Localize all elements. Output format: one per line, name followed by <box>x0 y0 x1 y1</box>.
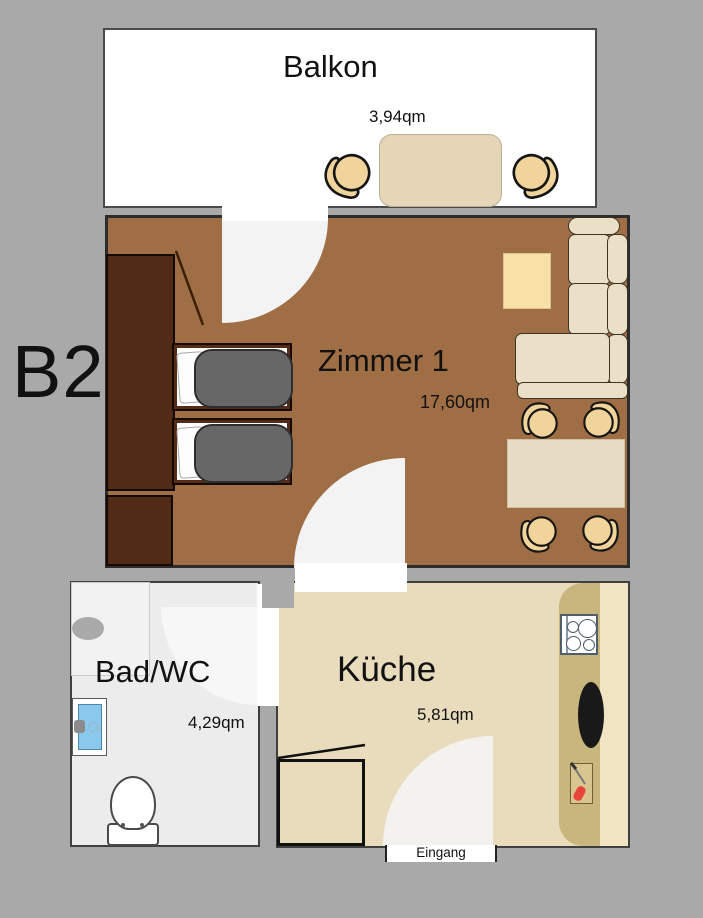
wardrobe-icon <box>106 254 175 491</box>
storage-cabinet-icon <box>106 495 173 566</box>
unit-label: B2 <box>12 333 105 411</box>
floorplan-canvas: B2 Balkon 3,94qm Zimmer 1 17,60qm <box>0 18 703 918</box>
shower-knob <box>74 720 85 733</box>
chair-icon <box>517 510 564 557</box>
sofa-armrest <box>607 283 628 335</box>
duvet <box>194 424 293 483</box>
chair-icon <box>518 398 565 445</box>
zimmer1-name-label: Zimmer 1 <box>318 345 449 378</box>
shower-unit-icon <box>72 698 107 756</box>
kitchen-cabinet-icon <box>277 759 365 846</box>
door-opening-bad <box>257 606 279 706</box>
toilet-hinge <box>121 823 125 827</box>
kitchen-sink-icon <box>578 682 604 748</box>
sofa-armrest <box>607 334 628 384</box>
door-opening-zimmer-kueche <box>295 563 407 592</box>
shower-drain <box>88 722 98 732</box>
duvet <box>194 349 293 408</box>
sofa-cushion <box>568 234 611 285</box>
sofa-seat <box>515 333 610 385</box>
chair-icon <box>575 509 622 556</box>
entrance-label: Eingang <box>416 845 466 860</box>
wall-stub <box>262 581 294 608</box>
bed-icon <box>172 418 292 485</box>
balcony-table-icon <box>379 134 502 207</box>
kueche-area-label: 5,81qm <box>417 706 474 724</box>
toilet-hinge <box>140 823 144 827</box>
sofa-icon <box>568 217 620 235</box>
stove-icon <box>560 614 598 655</box>
bad-area-label: 4,29qm <box>188 714 245 732</box>
chair-icon <box>576 397 623 444</box>
sofa-armrest <box>607 234 628 284</box>
kueche-name-label: Küche <box>337 652 436 689</box>
dining-table-icon <box>507 439 625 508</box>
burner-icon <box>566 636 581 651</box>
balkon-name-label: Balkon <box>283 51 378 84</box>
burner-icon <box>583 639 595 651</box>
burner-icon <box>578 619 597 638</box>
toilet-icon <box>110 776 156 830</box>
side-table-icon <box>503 253 551 309</box>
bed-icon <box>172 343 292 411</box>
kitchen-counter-edge <box>600 583 628 846</box>
sink-basin-icon <box>72 617 104 640</box>
sofa-cushion <box>568 283 611 335</box>
bad-name-label: Bad/WC <box>95 656 210 689</box>
door-opening-balcony <box>222 204 328 221</box>
entrance-opening: Eingang <box>385 845 497 862</box>
balkon-area-label: 3,94qm <box>369 108 426 126</box>
zimmer1-area-label: 17,60qm <box>420 393 490 412</box>
